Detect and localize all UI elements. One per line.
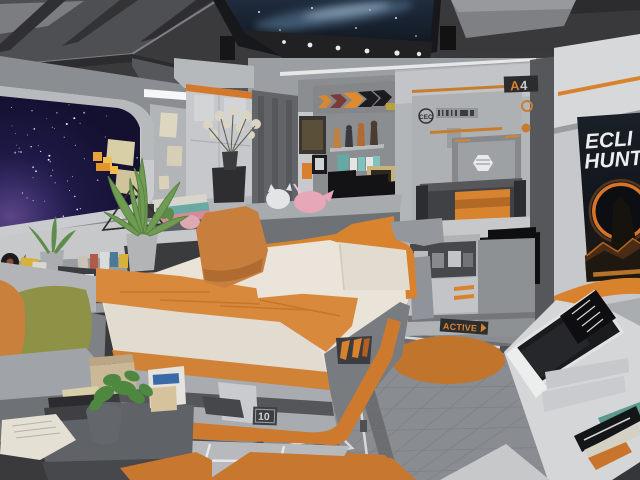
svg-text:4: 4 [520, 78, 529, 93]
svg-text:A: A [510, 78, 521, 93]
svg-text:HUNT: HUNT [583, 147, 640, 174]
svg-text:CEC: CEC [419, 114, 433, 121]
svg-text:10: 10 [258, 411, 270, 423]
